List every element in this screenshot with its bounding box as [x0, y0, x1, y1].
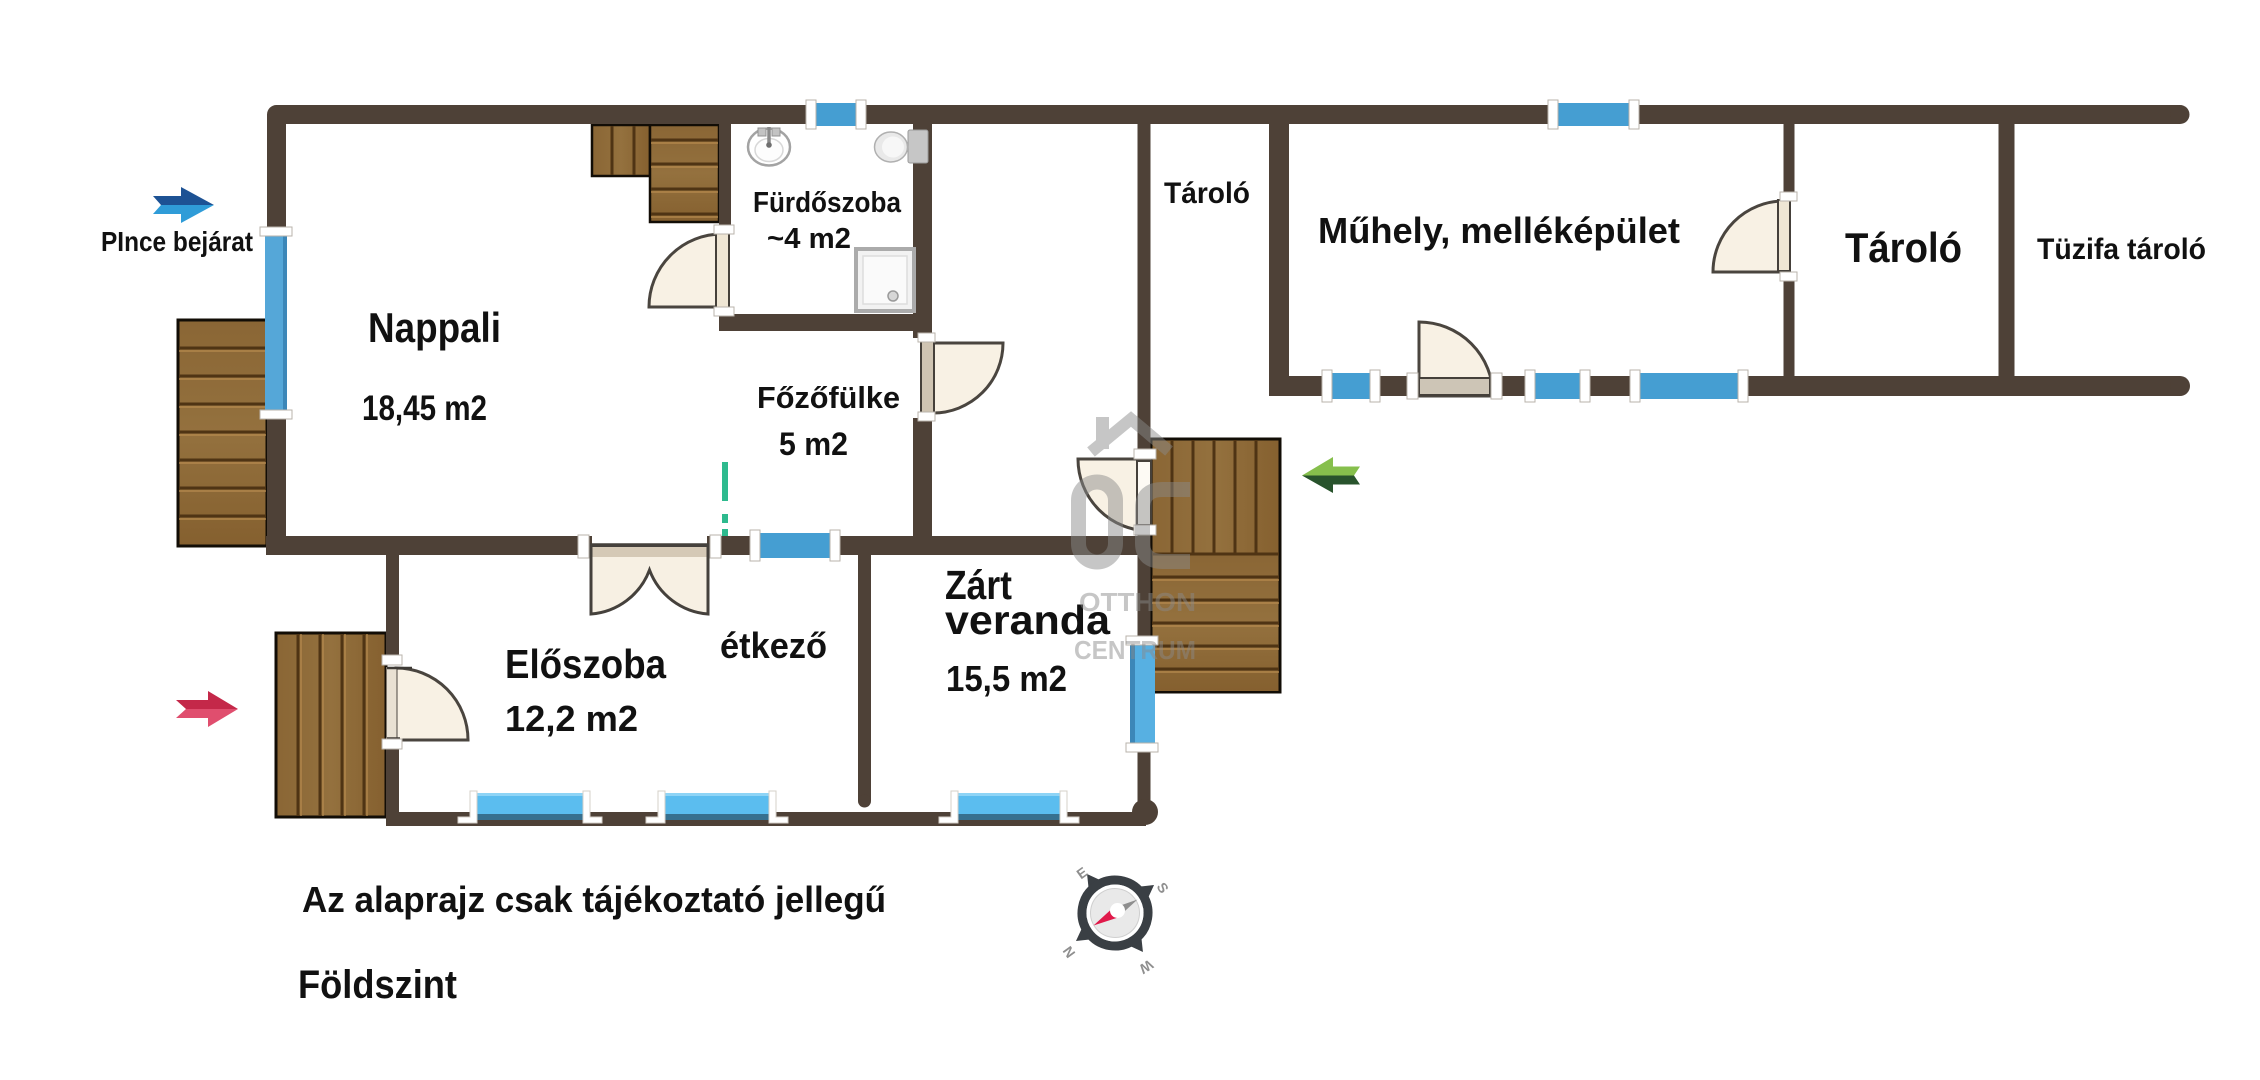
svg-text:Tároló: Tároló [1164, 177, 1250, 210]
svg-text:étkező: étkező [720, 625, 827, 666]
svg-text:12,2 m2: 12,2 m2 [505, 698, 638, 739]
svg-text:18,45 m2: 18,45 m2 [362, 389, 487, 428]
svg-text:Főzőfülke: Főzőfülke [757, 380, 900, 415]
svg-text:Tároló: Tároló [1845, 224, 1962, 271]
svg-text:Előszoba: Előszoba [505, 641, 667, 687]
svg-text:PInce bejárat: PInce bejárat [101, 226, 253, 257]
svg-text:5 m2: 5 m2 [779, 426, 848, 462]
svg-text:CENTRUM: CENTRUM [1074, 635, 1196, 665]
svg-text:OTTHON: OTTHON [1079, 587, 1196, 617]
svg-text:Tüzifa tároló: Tüzifa tároló [2037, 233, 2206, 266]
svg-text:15,5 m2: 15,5 m2 [946, 658, 1067, 699]
svg-text:Műhely, melléképület: Műhely, melléképület [1318, 210, 1680, 251]
svg-text:Nappali: Nappali [368, 304, 501, 351]
svg-text:~4 m2: ~4 m2 [767, 223, 851, 255]
svg-text:Földszint: Földszint [298, 963, 457, 1007]
svg-text:Fürdőszoba: Fürdőszoba [753, 187, 902, 219]
svg-text:Az alaprajz csak tájékoztató j: Az alaprajz csak tájékoztató jellegű [302, 879, 886, 920]
